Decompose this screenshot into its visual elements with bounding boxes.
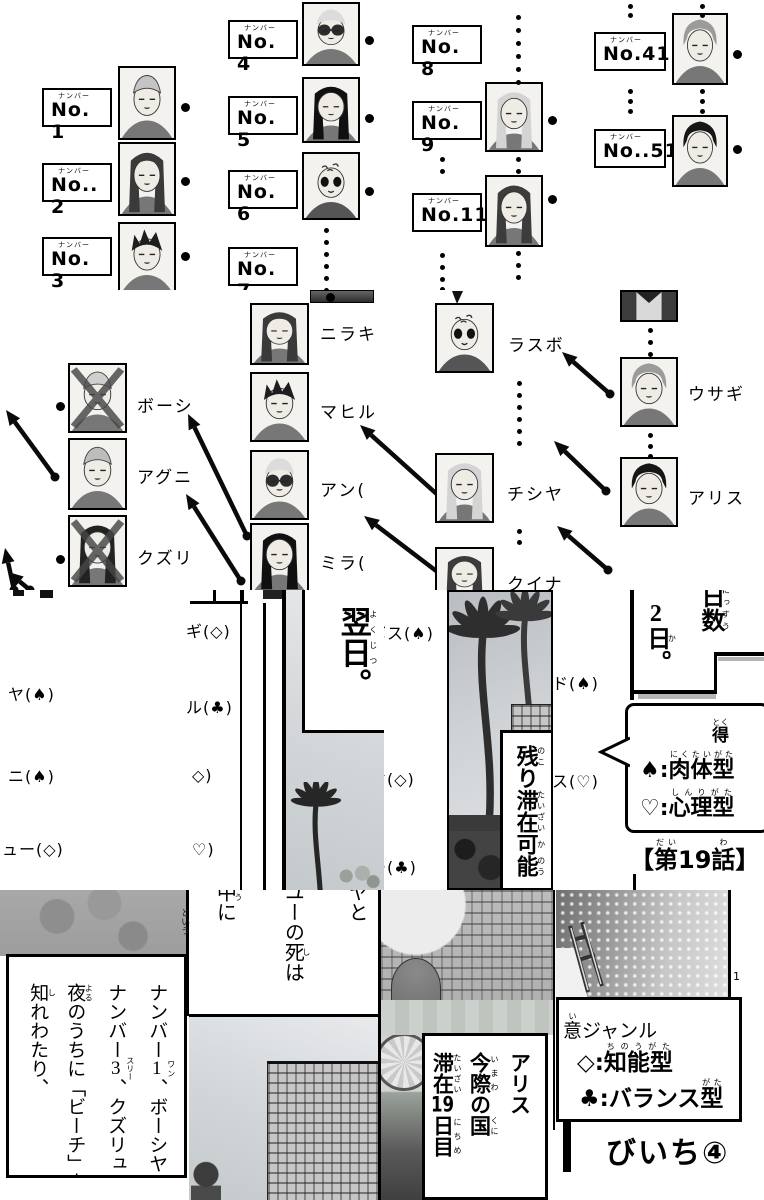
number-label: No. 1: [51, 99, 110, 143]
name-fragment: ル(♣): [186, 694, 233, 718]
name-fragment: ス(♡): [552, 768, 599, 792]
furigana: にちめ: [453, 1115, 462, 1157]
connector-dot: [440, 253, 445, 258]
furigana: わ: [711, 838, 735, 847]
connector-dot: [181, 252, 190, 261]
bubble-toku: 得とく: [712, 718, 729, 746]
furigana: たいざい: [453, 1052, 462, 1094]
connector-dot: [628, 4, 633, 9]
number-box-no2: ナンバーNo.. 2: [42, 163, 112, 202]
connector-dot: [628, 89, 633, 94]
kanji: 知: [27, 983, 48, 1002]
portrait: [118, 142, 176, 216]
genre-box: 意いジャンル ◇:知能型ちのうがた ♣:バランス型がた: [556, 997, 742, 1122]
name-fragment: ◇): [192, 766, 213, 785]
seam-artifact: [213, 590, 216, 601]
text: ヤと: [345, 890, 367, 922]
number-label: No.. 2: [51, 174, 110, 218]
text: 、ボーシヤ: [146, 1078, 167, 1173]
panel-border: [240, 590, 242, 890]
kanji: 残: [514, 745, 539, 767]
connector-dot: [440, 157, 445, 162]
kanji: 中: [213, 890, 235, 902]
dialog-col1: ヤと: [345, 890, 367, 922]
pool-ladder-icon: [558, 922, 608, 997]
text: ユーの: [281, 890, 303, 942]
connector-dot: [548, 195, 557, 204]
furigana: とく: [712, 718, 729, 727]
connector-dot: [365, 114, 374, 123]
page-number: 1: [733, 970, 740, 983]
diamond-icon: ◇:: [577, 1050, 604, 1076]
portrait-art: [622, 459, 676, 525]
name-fragment: ギ(◇): [186, 618, 231, 642]
narration-col2: ナンバー3スリー、クズリュ: [105, 983, 134, 1173]
relation-arrow: [562, 352, 615, 399]
portrait-art: [437, 455, 492, 521]
text: バランス: [609, 1086, 701, 1112]
portrait: [118, 66, 176, 140]
relation-arrow: [186, 494, 246, 586]
kanji: 知能型: [604, 1050, 673, 1076]
connector-dot: [517, 540, 522, 545]
connector-dot: [517, 381, 522, 386]
furigana: か: [667, 626, 676, 650]
text: アリス: [508, 1052, 532, 1115]
portrait-art: [304, 154, 358, 218]
number-box-no4: ナンバーNo. 4: [228, 20, 298, 59]
connector-dot: [648, 328, 653, 333]
name-fragment: ニ(♠): [8, 763, 55, 787]
caption-nissu-value: 2日か。: [642, 602, 676, 674]
panel3-photo-garden: [381, 1035, 422, 1200]
panel-row-top: ヤ(♠) ニ(♠) ュー(◇) ギ(◇) ル(♣) ◇) ♡) ボス(♠) ヤ(…: [0, 590, 764, 890]
furigana: よる: [84, 983, 93, 1002]
furigana: じつ: [369, 637, 378, 668]
relation-arrow: [360, 425, 445, 502]
kanji: 日: [336, 637, 371, 668]
kanji: 今際: [468, 1052, 492, 1094]
relation-arrow: [557, 526, 613, 575]
furigana: い: [563, 1012, 582, 1021]
portrait: [68, 438, 127, 510]
panel-shadow: [638, 694, 716, 699]
caption-arisu: アリス: [507, 1052, 531, 1115]
connector-dot: [516, 157, 521, 162]
panel3-caption-box: アリス 今際いまわの国くに 滞在たいざい19日目にちめ: [422, 1033, 548, 1200]
connector-dot: [517, 393, 522, 398]
furigana: しんりがた: [669, 788, 735, 797]
panel-row-bottom: 。 ナンバー1ワン、ボーシヤ ナンバー3スリー、クズリュ 夜よるのうちに「ビーチ…: [0, 890, 764, 1200]
seam-artifact: [13, 590, 24, 596]
episode-title: 【第だい19話わ】: [630, 838, 764, 875]
chart-band-names: ボーシ アグニ クズリ ニラキ マヒル アン( ミラ( ラスボ チシヤ クイナ …: [0, 290, 764, 590]
panel-nissu: 日数にっすう 2日か。: [630, 590, 764, 700]
caption-nissu-label: 日数にっすう: [696, 590, 730, 632]
flowers: [330, 862, 384, 890]
connector-dot: [700, 109, 705, 114]
connector-dot: [516, 263, 521, 268]
kanji: 得: [712, 726, 729, 746]
name-fragment: ヤ(♠): [8, 681, 55, 705]
digit: 1: [146, 1059, 167, 1078]
connector-dot: [516, 15, 521, 20]
panel-border: [714, 652, 717, 694]
number-label: No..51: [603, 140, 679, 162]
bracket: 】: [735, 846, 759, 874]
portrait-art: [304, 4, 358, 64]
kana: の: [468, 1094, 492, 1115]
portrait-art: [252, 452, 307, 518]
furigana: ゅう: [234, 890, 243, 902]
kanji: 可: [514, 833, 539, 855]
connector-dot: [324, 276, 329, 281]
panel-border: [728, 890, 731, 997]
portrait: [302, 2, 360, 66]
panel1-photo: [0, 890, 190, 956]
bracket: 【: [630, 846, 654, 874]
furigana: のう: [537, 855, 546, 877]
genre-diamond-line: ◇:知能型ちのうがた: [577, 1042, 673, 1077]
number-label: No. 3: [51, 248, 110, 290]
number-label: No.11: [421, 204, 489, 226]
title-bar: [563, 1122, 571, 1172]
dialog-col2: ユーの死しは: [281, 890, 310, 982]
episode-number: 19: [678, 846, 711, 874]
text: 、クズリュ: [105, 1078, 126, 1173]
portrait: [250, 372, 309, 442]
furigana: だい: [654, 838, 678, 847]
furigana: たいざい: [537, 789, 546, 833]
number-box-no9: ナンバーNo. 9: [412, 101, 482, 140]
panel-palms-photo: 残のこり滞在たいざい可か能のう: [447, 590, 553, 890]
panel-border: [633, 874, 636, 890]
kanji: 翌: [336, 606, 371, 637]
panel-yokujitsu-photo: 翌よく日じつ。: [282, 590, 384, 890]
number-box-no5: ナンバーNo. 5: [228, 96, 298, 135]
portrait-art: [674, 15, 726, 83]
portrait: [620, 457, 678, 527]
connector-dot: [516, 251, 521, 256]
kanji: 死: [281, 942, 303, 962]
portrait: [118, 222, 176, 290]
portrait: [250, 523, 309, 590]
kanji: 日目: [431, 1115, 455, 1157]
number-label: No.41: [603, 43, 671, 65]
panel-shadow: [718, 657, 764, 661]
furigana: し: [302, 942, 311, 962]
portrait: [302, 152, 360, 220]
connector-dot: [516, 67, 521, 72]
relation-arrow: [554, 441, 611, 496]
furigana: ちのうがた: [604, 1042, 673, 1051]
caption-yokujitsu: 翌よく日じつ。: [335, 606, 377, 699]
panel3-photo-building: [381, 890, 553, 1035]
genre-club-line: ♣:バランス型がた: [579, 1078, 723, 1113]
connector-dot: [733, 50, 742, 59]
connector-dot: [628, 99, 633, 104]
kanji: 第: [654, 846, 678, 874]
kanji: 滞在: [514, 789, 539, 833]
panel-border: [263, 603, 266, 890]
portrait-art: [70, 440, 125, 508]
speech-bubble: 得とく ♠:肉体型にくたいがた ♡:心理型しんりがた: [625, 703, 764, 833]
club-icon: ♣:: [579, 1086, 609, 1112]
portrait: [485, 82, 543, 152]
umbrella: [381, 1035, 422, 1091]
portrait: [672, 13, 728, 85]
number-label: No. 6: [237, 181, 296, 225]
relation-arrow: [188, 414, 252, 541]
connector-dot: [516, 169, 521, 174]
caption-taizai: 滞在たいざい19日目にちめ: [430, 1052, 462, 1157]
furigana: いまわ: [490, 1052, 499, 1094]
panel2-photo: [189, 1014, 380, 1200]
kanji: 意: [563, 1020, 582, 1042]
seam-text-fragment: という: [180, 908, 190, 935]
digit: 2: [643, 602, 669, 626]
panel-border: [714, 652, 764, 656]
portrait-art: [120, 68, 174, 138]
connector-dot: [324, 264, 329, 269]
chapter-name: びいち④: [606, 1128, 729, 1172]
kanji: 国: [468, 1115, 492, 1136]
heart-icon: ♡:: [640, 796, 669, 821]
name-fragment: ♡): [192, 840, 215, 859]
caption-nokori: 残のこり滞在たいざい可か能のう: [513, 745, 545, 877]
furigana: し: [47, 983, 56, 1002]
narration-col1: ナンバー1ワン、ボーシヤ: [146, 983, 175, 1173]
furigana: がた: [700, 1078, 723, 1087]
caption-box: 残のこり滞在たいざい可か能のう: [500, 730, 553, 890]
portrait: [68, 363, 127, 433]
portrait-art: [304, 79, 358, 141]
narration-col3: 夜よるのうちに「ビーチ」中: [64, 983, 93, 1178]
connector-dot: [516, 275, 521, 280]
number-label: No. 9: [421, 112, 480, 156]
caption-box: 翌よく日じつ。: [302, 590, 384, 733]
text: ジャンル: [582, 1020, 657, 1042]
connector-dot: [516, 28, 521, 33]
digits: 19: [431, 1094, 455, 1115]
number-box-no3: ナンバーNo. 3: [42, 237, 112, 276]
number-label: No. 7: [237, 258, 296, 290]
connector-dot: [733, 145, 742, 154]
connector-dot: [700, 89, 705, 94]
portrait-art: [437, 549, 492, 590]
portrait: [620, 357, 678, 427]
portrait-art: [252, 525, 307, 590]
portrait-art: [120, 144, 174, 214]
number-box-no8: ナンバーNo. 8: [412, 25, 482, 64]
text: れわたり、: [27, 1002, 48, 1097]
kanji: 心理型: [669, 796, 735, 821]
connector-dot: [648, 433, 653, 438]
spade-icon: ♠:: [640, 758, 669, 783]
portrait-art: [70, 365, 125, 431]
text: のうちに「ビーチ」中: [64, 1002, 85, 1178]
connector-dot: [648, 340, 653, 345]
building: [267, 1061, 380, 1200]
portrait-art: [487, 84, 541, 150]
furigana: にくたいがた: [669, 750, 735, 759]
panel-border: [553, 890, 555, 1130]
kana: り: [514, 767, 539, 789]
furigana: のこ: [537, 745, 546, 767]
portrait: [435, 303, 494, 373]
portrait: [68, 515, 127, 587]
connector-dot: [648, 444, 653, 449]
connector-dot: [516, 80, 521, 85]
connector-dot: [700, 13, 705, 18]
seam-artifact: [40, 590, 53, 598]
punctuation: 。: [643, 650, 669, 674]
kanji: 夜: [64, 983, 85, 1002]
connector-dot: [516, 41, 521, 46]
portrait-art: [120, 224, 174, 290]
furigana: ワン: [167, 1059, 176, 1078]
connector-dot: [517, 429, 522, 434]
relation-arrow: [6, 410, 60, 482]
dialog-col3: 中ゅうに: [213, 890, 242, 922]
portrait: [485, 175, 543, 247]
portrait-art: [252, 374, 307, 440]
connector-dot: [517, 405, 522, 410]
manga-page: ナンバーNo. 1 ナンバーNo.. 2 ナンバーNo. 3 ナンバーNo. 4…: [0, 0, 764, 1200]
number-box-no7: ナンバーNo. 7: [228, 247, 298, 286]
furigana: くに: [490, 1115, 499, 1136]
furigana: よく: [369, 606, 378, 637]
panel1-caption-box: ナンバー1ワン、ボーシヤ ナンバー3スリー、クズリュ 夜よるのうちに「ビーチ」中…: [6, 954, 187, 1178]
narration-col4: 知しれわたり、: [27, 983, 56, 1097]
furigana: スリー: [126, 1057, 135, 1081]
chart-band-top: ナンバーNo. 1 ナンバーNo.. 2 ナンバーNo. 3 ナンバーNo. 4…: [0, 0, 764, 290]
connector-dot: [365, 187, 374, 196]
name-fragment: ド(♠): [552, 670, 599, 694]
portrait-art: [487, 177, 541, 245]
panel2-caption-area: ヤと ユーの死しは 中ゅうに: [189, 890, 380, 1014]
furigana: か: [537, 833, 546, 855]
caption-imawa: 今際いまわの国くに: [467, 1052, 499, 1136]
number-box-no6: ナンバーNo. 6: [228, 170, 298, 209]
digit: 3: [105, 1057, 126, 1081]
connector-dot: [440, 169, 445, 174]
kanji: 話: [711, 846, 735, 874]
connector-dot: [517, 441, 522, 446]
portrait-art: [674, 117, 726, 185]
tree: [191, 1159, 221, 1200]
portrait-art: [70, 517, 125, 585]
text: ナンバー: [105, 983, 126, 1059]
connector-dot: [56, 402, 65, 411]
connector-dot: [648, 352, 653, 357]
number-label: No. 8: [421, 36, 480, 80]
connector-dot: [326, 293, 335, 302]
portrait-art: [622, 292, 676, 320]
portrait: [250, 450, 309, 520]
connector-dot: [324, 252, 329, 257]
number-box-no41: ナンバーNo.41: [594, 32, 666, 71]
connector-dot: [324, 240, 329, 245]
connector-dot: [628, 109, 633, 114]
number-box-no1: ナンバーNo. 1: [42, 88, 112, 127]
number-label: No. 5: [237, 107, 296, 151]
portrait: [620, 290, 678, 322]
bubble-tail: [596, 736, 630, 768]
portrait: [435, 453, 494, 523]
number-label: No. 4: [237, 31, 296, 75]
portrait-art: [622, 359, 676, 425]
connector-dot: [517, 417, 522, 422]
connector-dot: [517, 529, 522, 534]
portrait-art: [437, 305, 492, 371]
canopy: [381, 1000, 553, 1035]
kanji: 型: [700, 1086, 723, 1112]
connector-dot: [56, 555, 65, 564]
genre-heading: 意いジャンル: [563, 1012, 657, 1043]
portrait: [672, 115, 728, 187]
connector-dot: [700, 99, 705, 104]
connector-dot: [440, 265, 445, 270]
portrait: [250, 303, 309, 365]
portrait-art: [252, 305, 307, 363]
kanji: 肉体型: [669, 758, 735, 783]
kanji: 能: [514, 855, 539, 877]
connector-dot: [516, 54, 521, 59]
kanji: 日数: [697, 590, 723, 632]
text: ナンバー: [146, 983, 167, 1059]
portrait: [302, 77, 360, 143]
furigana: にっすう: [721, 590, 730, 632]
bubble-spade-line: ♠:肉体型にくたいがた: [640, 750, 735, 784]
panel4-photo-pool: [556, 890, 728, 997]
connector-dot: [548, 116, 557, 125]
portrait: [435, 547, 494, 590]
connector-dot: [181, 103, 190, 112]
name-fragment: ュー(◇): [2, 836, 64, 860]
kanji: 日: [643, 626, 669, 650]
punctuation: 。: [336, 668, 371, 699]
number-box-no11: ナンバーNo.11: [412, 193, 482, 232]
connector-dot: [700, 4, 705, 9]
connector-dot: [648, 454, 653, 459]
text: は: [281, 962, 303, 982]
connector-dot: [324, 228, 329, 233]
kanji: 滞在: [431, 1052, 455, 1094]
text: に: [213, 902, 235, 922]
connector-dot: [628, 13, 633, 18]
connector-dot: [365, 36, 374, 45]
bubble-heart-line: ♡:心理型しんりがた: [640, 788, 735, 822]
connector-dot: [440, 277, 445, 282]
number-box-no51: ナンバーNo..51: [594, 129, 666, 168]
connector-dot: [181, 177, 190, 186]
